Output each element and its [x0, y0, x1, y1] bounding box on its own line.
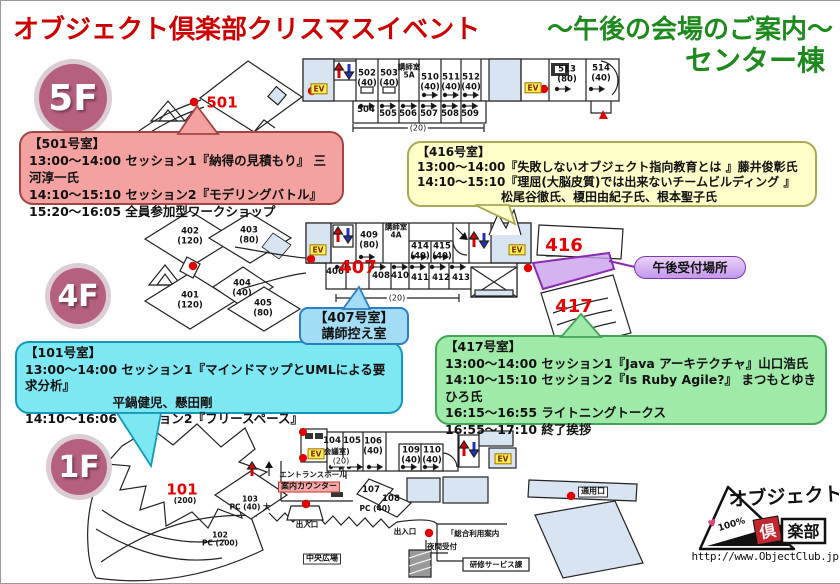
callout-line: 14:10～15:10 セッション2『Is Ruby Agile?』 まつもとゆ…	[445, 372, 817, 405]
callout-room-501: 【501号室】13:00～14:00 セッション1『納得の見積もり』 三河淳一氏…	[19, 131, 344, 205]
callout-room-407: 【407号室】講師控え室	[299, 307, 409, 345]
callout-room-101: 【101号室】13:00～14:00 セッション1『マインドマップとUMLによる…	[15, 341, 403, 414]
callout-tail	[469, 203, 521, 226]
callout-line: 【417号室】	[445, 339, 817, 356]
callout-line: 14:10～15:10『理屈(大脳皮質)では出来ないチームビルディング 』	[417, 175, 807, 190]
page-title: オブジェクト倶楽部クリスマスイベント	[13, 9, 480, 46]
callout-line: 講師控え室	[309, 327, 399, 343]
callout-tail	[173, 104, 223, 135]
callout-line: 16:15～16:55 ライトニングトークス	[445, 405, 817, 422]
callout-line: 13:00～14:00『失敗しないオブジェクト指向教育とは 』藤井俊彰氏	[417, 160, 807, 175]
callout-line: 14:10～16:06 セッション2『フリースペース』	[25, 411, 393, 428]
callout-line: 【416号室】	[417, 145, 807, 160]
floor-badge-5f: 5F	[39, 64, 107, 132]
callout-tail	[339, 284, 375, 311]
callout-line: 13:00～14:00 セッション1『Java アーキテクチャ』山口浩氏	[445, 356, 817, 373]
callout-line: 【407号室】	[309, 311, 399, 327]
callout-tail	[111, 410, 166, 468]
floor-badge-1f: 1F	[51, 439, 107, 495]
callout-line: 16:55～17:10 終了挨拶	[445, 422, 817, 439]
callout-line: 13:00～14:00 セッション1『マインドマップとUMLによる要求分析』	[25, 362, 393, 395]
callout-line: 13:00～14:00 セッション1『納得の見積もり』 三河淳一氏	[29, 152, 334, 186]
callout-room-417: 【417号室】13:00～14:00 セッション1『Java アーキテクチャ』山…	[435, 335, 827, 425]
svg-text:楽部: 楽部	[786, 522, 819, 541]
logo-url: http://www.ObjectClub.jp	[691, 550, 839, 563]
building-name: センター棟	[685, 39, 825, 79]
floor-badge-4f: 4F	[50, 268, 106, 324]
event-map-slide: 501502 (40)503 (40)講師室 5A510 (40)511 (40…	[0, 0, 840, 584]
logo-brand-text: オブジェクト	[728, 482, 839, 511]
logo-red-box: 倶	[753, 516, 782, 545]
callout-line: 【101号室】	[25, 345, 393, 362]
callout-line: 【501号室】	[29, 135, 334, 152]
callout-tail	[555, 311, 607, 339]
callout-afternoon-reception: 午後受付場所	[634, 256, 746, 279]
callout-line: 14:10～15:10 セッション2『モデリングバトル』	[29, 186, 334, 203]
callout-line: 15:20～16:05 全員参加型ワークショップ	[29, 203, 334, 220]
callout-line: 平鍋健児、懸田剛	[25, 395, 393, 412]
logo-white-box: 楽部	[782, 519, 825, 543]
object-club-logo: ♥ 100% オブジェクト 倶 楽部	[689, 481, 839, 553]
callout-room-416: 【416号室】13:00～14:00『失敗しないオブジェクト指向教育とは 』藤井…	[407, 141, 817, 207]
floor-1f-plan	[88, 424, 643, 581]
